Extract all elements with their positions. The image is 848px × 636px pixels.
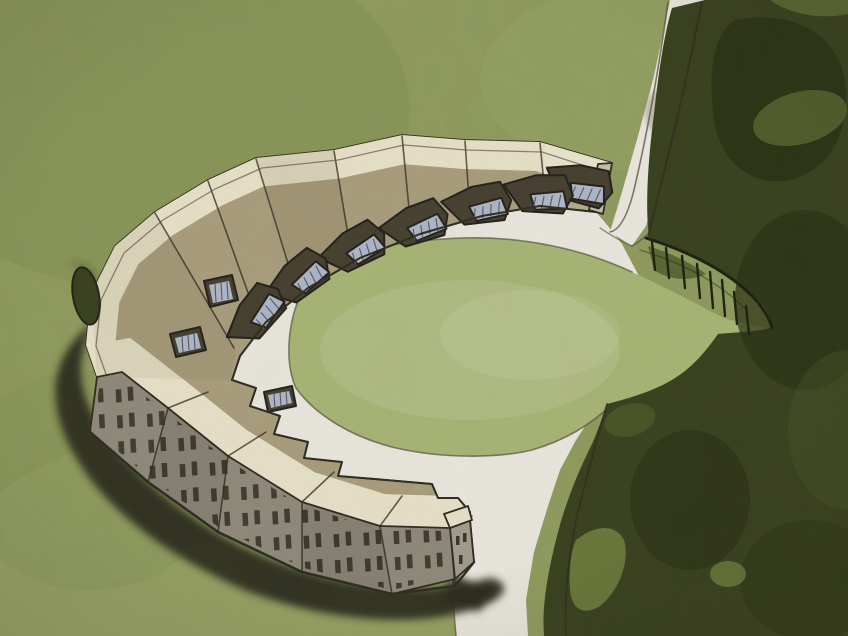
watercolor-scene [0,0,848,636]
paper-grain [0,0,848,636]
illustration-canvas [0,0,848,636]
